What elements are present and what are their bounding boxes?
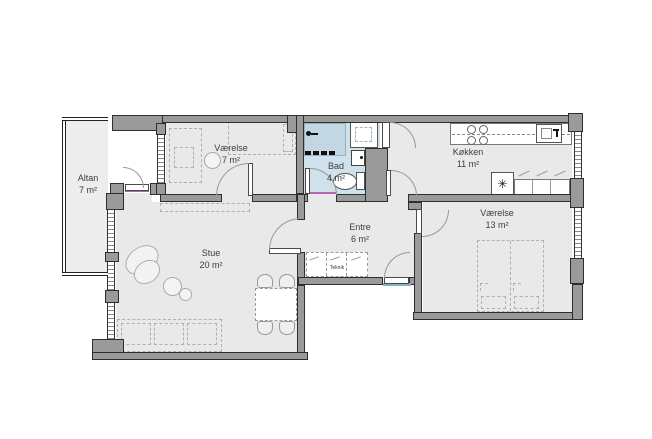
wardrobe-divider [326, 253, 327, 276]
shower-drain-mark [321, 151, 327, 155]
room-area: 11 m² [453, 158, 484, 170]
room-name: Altan [78, 172, 99, 184]
dining-table [255, 288, 297, 321]
wall [297, 285, 305, 360]
stove-burner [479, 125, 488, 134]
bed-corner-mark [513, 283, 521, 291]
room-label-vaerelse-small: Værelse 7 m² [214, 142, 248, 166]
side-table [179, 288, 192, 301]
sofa-cushion [121, 323, 151, 345]
window [574, 208, 582, 258]
balcony-railing [62, 272, 108, 276]
floor-livingroom [124, 193, 152, 202]
shower-drain-mark [305, 151, 311, 155]
door-swing-arc [123, 167, 144, 188]
wall [414, 233, 422, 320]
room-area: 7 m² [78, 184, 99, 196]
wall [252, 194, 297, 202]
wall [106, 193, 124, 210]
shower-drain-mark [329, 151, 335, 155]
wall [408, 194, 583, 202]
dining-chair [257, 274, 273, 288]
dining-chair [257, 321, 273, 335]
room-area: 4 m² [327, 172, 345, 184]
wall [296, 115, 304, 194]
room-name: Entre [349, 221, 371, 233]
room-name: Stue [199, 247, 222, 259]
sofa-cushion [154, 323, 184, 345]
room-area: 7 m² [214, 154, 248, 166]
stove-burner [467, 136, 476, 145]
front-door [384, 277, 409, 284]
wall [92, 352, 308, 360]
bed-divider [510, 241, 511, 311]
wall [160, 194, 222, 202]
window [107, 303, 115, 339]
room-area: 6 m² [349, 233, 371, 245]
window [107, 262, 115, 290]
wall [156, 123, 166, 135]
wall [413, 312, 583, 320]
wall [105, 252, 119, 262]
wall [297, 194, 305, 220]
floor-balcony [64, 119, 108, 274]
room-label-bad: Bad 4 m² [327, 160, 345, 184]
wall [365, 148, 388, 202]
wall [336, 194, 366, 202]
stove-burner [479, 136, 488, 145]
room-area: 20 m² [199, 259, 222, 271]
window [107, 210, 115, 252]
floor-plan: ✳ [0, 0, 652, 439]
wardrobe-divider [346, 253, 347, 276]
window [574, 132, 582, 178]
room-label-entre: Entre 6 m² [349, 221, 371, 245]
room-area: 13 m² [480, 219, 514, 231]
shower-arm-icon [311, 133, 318, 135]
room-name: Køkken [453, 146, 484, 158]
room-name: Værelse [214, 142, 248, 154]
balcony-railing [62, 117, 108, 121]
wall [105, 290, 119, 303]
faucet-icon [360, 156, 363, 159]
wall [570, 258, 584, 284]
dining-chair [279, 274, 295, 288]
room-name: Bad [327, 160, 345, 172]
refrigerator: ✳ [491, 172, 514, 196]
sofa-cushion [187, 323, 217, 345]
desk-chair [174, 147, 194, 168]
shower-drain-mark [313, 151, 319, 155]
kitchen-sink-basin [541, 128, 552, 139]
sideboard [160, 203, 250, 212]
pillow [481, 296, 506, 309]
stove-burner [467, 125, 476, 134]
room-label-koekken: Køkken 11 m² [453, 146, 484, 170]
wall [298, 277, 383, 285]
dining-chair [279, 321, 295, 335]
wall [112, 115, 583, 123]
faucet-icon [556, 129, 558, 137]
bed-corner-mark [480, 283, 488, 291]
room-label-altan: Altan 7 m² [78, 172, 99, 196]
wall [568, 113, 583, 132]
wall [572, 284, 583, 320]
window [157, 135, 165, 183]
balcony-railing [62, 117, 66, 276]
closet-label-teknik: Teknik [330, 265, 344, 271]
cabinet-divider [532, 180, 533, 195]
kitchen-bath-door [382, 122, 390, 148]
washing-machine-door [355, 127, 372, 142]
room-name: Værelse [480, 207, 514, 219]
refrigerator-icon: ✳ [497, 177, 507, 191]
door-opening [308, 194, 336, 202]
wall [156, 183, 166, 195]
toilet-tank [356, 172, 365, 190]
wall [570, 178, 584, 208]
room-label-vaerelse-large: Værelse 13 m² [480, 207, 514, 231]
room-label-stue: Stue 20 m² [199, 247, 222, 271]
cabinet-divider [550, 180, 551, 195]
pillow [514, 296, 539, 309]
